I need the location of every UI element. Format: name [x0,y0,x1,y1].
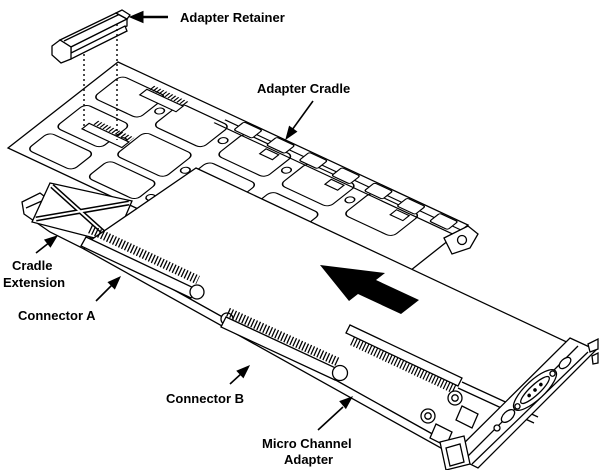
figure-micro-channel-adapter-installation: Adapter Retainer Adapter Cradle Cradle E… [0,0,600,470]
bracket-prong [588,339,598,352]
bracket-foot-inner [446,444,464,466]
label-cradle-extension-line2: Extension [3,275,65,290]
bracket-prong [592,353,598,364]
label-micro-channel-adapter-line2: Adapter [284,452,333,467]
adapter-retainer [52,10,130,63]
connector-a-boot [190,285,204,299]
arrow-connector-a [96,277,120,301]
arrow-adapter-cradle [286,101,313,139]
label-micro-channel-adapter-line1: Micro Channel [262,436,352,451]
arrow-micro-channel-adapter [318,397,352,430]
diagram-canvas: Adapter Retainer Adapter Cradle Cradle E… [0,0,600,470]
label-cradle-extension-line1: Cradle [12,258,52,273]
arrow-cradle-extension [36,236,57,253]
arrow-adapter-retainer [130,12,168,23]
label-connector-b: Connector B [166,391,244,406]
label-connector-a: Connector A [18,308,96,323]
label-adapter-retainer: Adapter Retainer [180,10,285,25]
arrow-connector-b [230,366,249,384]
connector-b-boot [333,366,348,381]
label-adapter-cradle: Adapter Cradle [257,81,350,96]
